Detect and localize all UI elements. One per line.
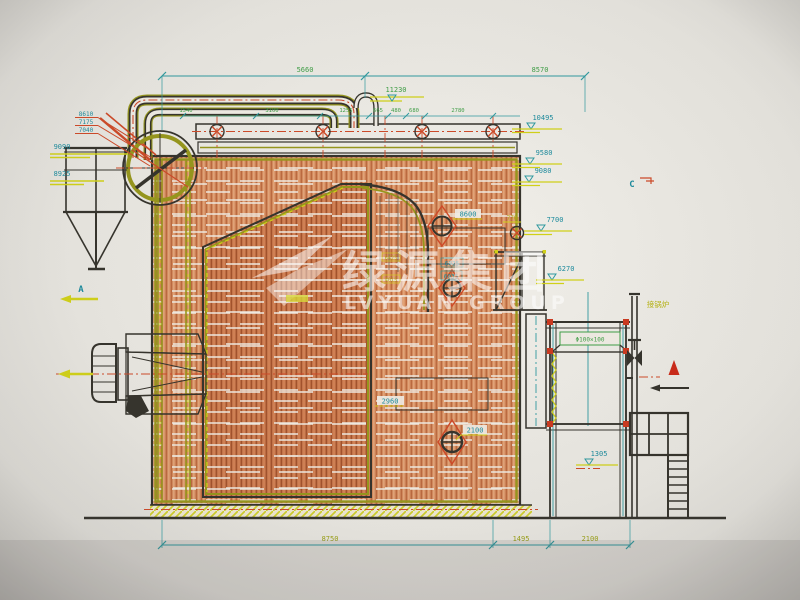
- photo-of-boiler-drawing: 5660 8570 11230 1540 3100 1255 665 480 6…: [0, 0, 800, 600]
- photo-vignette: [0, 0, 800, 600]
- engineering-drawing: 5660 8570 11230 1540 3100 1255 665 480 6…: [0, 0, 800, 600]
- photo-shadow-bottom: [0, 540, 800, 600]
